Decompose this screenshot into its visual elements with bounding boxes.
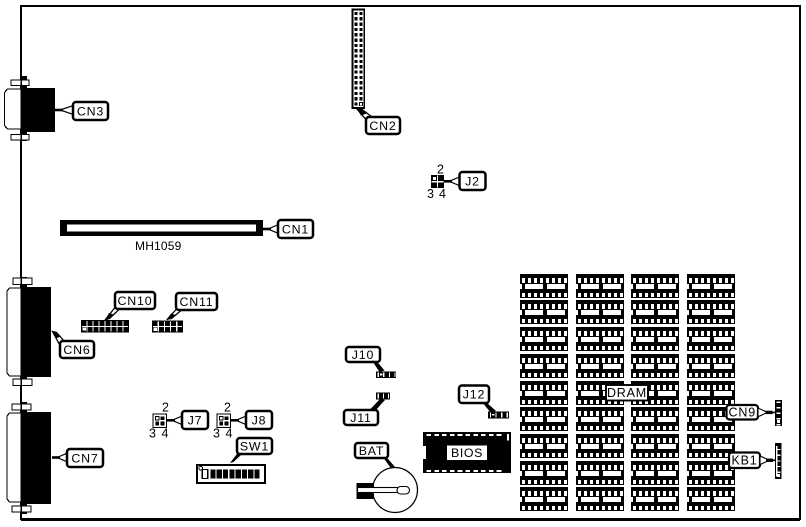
svg-text:BAT: BAT — [359, 444, 385, 458]
svg-text:MH1059: MH1059 — [135, 239, 182, 253]
svg-text:3: 3 — [213, 427, 220, 441]
svg-text:2: 2 — [162, 401, 169, 415]
svg-text:CN11: CN11 — [180, 295, 214, 309]
svg-text:CN3: CN3 — [77, 104, 104, 118]
svg-text:3: 3 — [427, 187, 434, 201]
svg-text:J8: J8 — [252, 413, 267, 427]
svg-text:BIOS: BIOS — [451, 446, 483, 460]
svg-text:J12: J12 — [463, 388, 485, 402]
svg-text:2: 2 — [224, 401, 231, 415]
svg-text:CN6: CN6 — [63, 343, 90, 357]
svg-text:3: 3 — [149, 427, 156, 441]
svg-text:KB1: KB1 — [731, 454, 757, 468]
svg-text:DRAM: DRAM — [607, 386, 647, 400]
svg-text:4: 4 — [439, 187, 446, 201]
svg-text:CN9: CN9 — [729, 406, 756, 420]
svg-text:4: 4 — [162, 427, 169, 441]
svg-text:CN7: CN7 — [71, 451, 98, 465]
svg-text:SW1: SW1 — [240, 439, 269, 453]
svg-text:CN2: CN2 — [369, 119, 396, 133]
svg-text:CN1: CN1 — [282, 222, 309, 236]
svg-text:CN10: CN10 — [118, 294, 153, 308]
svg-text:J7: J7 — [188, 413, 203, 427]
svg-text:2: 2 — [437, 163, 444, 177]
svg-text:4: 4 — [226, 427, 233, 441]
svg-text:J11: J11 — [350, 411, 371, 425]
svg-text:J10: J10 — [352, 348, 374, 362]
svg-text:J2: J2 — [465, 174, 480, 188]
